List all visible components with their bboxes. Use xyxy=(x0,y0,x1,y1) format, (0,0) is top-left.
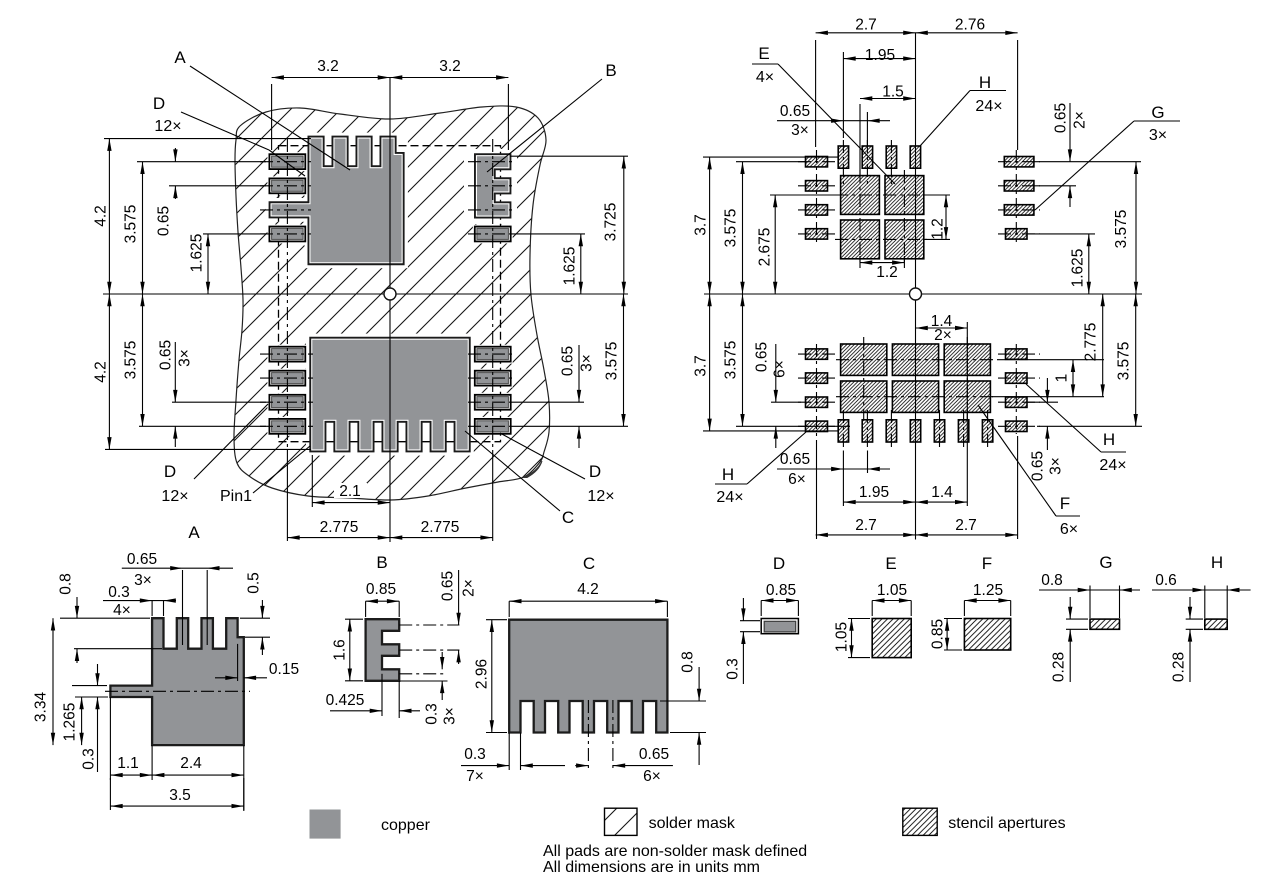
svg-text:6×: 6× xyxy=(643,768,661,785)
svg-text:stencil apertures: stencil apertures xyxy=(948,815,1065,832)
svg-text:3.575: 3.575 xyxy=(123,205,140,244)
svg-text:0.65: 0.65 xyxy=(158,340,175,370)
svg-text:24×: 24× xyxy=(716,489,743,506)
svg-text:Pin1: Pin1 xyxy=(220,488,252,505)
svg-text:E: E xyxy=(758,44,769,63)
svg-text:0.3: 0.3 xyxy=(424,703,441,725)
svg-text:H: H xyxy=(722,465,734,484)
svg-text:2×: 2× xyxy=(934,327,952,344)
svg-text:1.5: 1.5 xyxy=(882,84,904,101)
svg-text:12×: 12× xyxy=(587,488,614,505)
svg-text:D: D xyxy=(153,94,165,113)
svg-text:0.65: 0.65 xyxy=(560,346,577,376)
svg-text:2.775: 2.775 xyxy=(1083,323,1100,362)
svg-text:1.625: 1.625 xyxy=(189,234,206,273)
svg-text:1.2: 1.2 xyxy=(930,218,947,240)
svg-text:3.575: 3.575 xyxy=(723,209,740,248)
svg-text:0.5: 0.5 xyxy=(246,572,263,594)
svg-text:0.65: 0.65 xyxy=(156,206,173,236)
svg-text:12×: 12× xyxy=(161,488,188,505)
svg-text:3×: 3× xyxy=(1149,127,1167,144)
svg-text:0.28: 0.28 xyxy=(1051,652,1068,682)
svg-text:1: 1 xyxy=(1054,374,1071,383)
svg-text:3×: 3× xyxy=(177,349,194,367)
svg-text:0.8: 0.8 xyxy=(58,573,75,595)
svg-text:0.65: 0.65 xyxy=(639,746,669,763)
svg-text:F: F xyxy=(1060,494,1070,513)
svg-text:1.265: 1.265 xyxy=(62,703,79,742)
svg-text:copper: copper xyxy=(381,817,431,834)
svg-text:0.65: 0.65 xyxy=(127,551,157,568)
svg-text:1.2: 1.2 xyxy=(876,264,898,281)
svg-text:0.65: 0.65 xyxy=(754,342,771,372)
svg-text:D: D xyxy=(164,462,176,481)
svg-text:All dimensions are in units mm: All dimensions are in units mm xyxy=(543,859,760,876)
svg-text:H: H xyxy=(979,73,991,92)
svg-text:C: C xyxy=(562,508,574,527)
svg-text:7×: 7× xyxy=(466,768,484,785)
svg-text:3.575: 3.575 xyxy=(723,341,740,380)
svg-text:12×: 12× xyxy=(154,118,181,135)
svg-text:1.95: 1.95 xyxy=(865,47,895,64)
svg-text:0.85: 0.85 xyxy=(366,581,396,598)
svg-text:0.3: 0.3 xyxy=(725,658,742,680)
svg-text:3.575: 3.575 xyxy=(1116,342,1133,381)
svg-text:D: D xyxy=(773,554,785,573)
svg-text:0.65: 0.65 xyxy=(780,103,810,120)
svg-text:G: G xyxy=(1151,103,1164,122)
svg-text:6×: 6× xyxy=(788,471,806,488)
svg-text:3.2: 3.2 xyxy=(317,58,339,75)
svg-text:0.8: 0.8 xyxy=(680,651,697,673)
svg-text:2×: 2× xyxy=(1072,111,1089,129)
svg-text:1.25: 1.25 xyxy=(973,582,1003,599)
svg-text:2.7: 2.7 xyxy=(855,17,877,34)
svg-text:0.65: 0.65 xyxy=(780,451,810,468)
svg-text:3×: 3× xyxy=(791,122,809,139)
svg-text:6×: 6× xyxy=(772,360,789,378)
svg-text:2.96: 2.96 xyxy=(474,659,491,689)
svg-text:2.1: 2.1 xyxy=(339,483,361,500)
svg-text:24×: 24× xyxy=(1099,457,1126,474)
svg-text:E: E xyxy=(885,554,896,573)
svg-text:2.775: 2.775 xyxy=(320,519,359,536)
svg-text:0.6: 0.6 xyxy=(1155,572,1177,589)
svg-text:G: G xyxy=(1099,553,1112,572)
svg-text:2.76: 2.76 xyxy=(955,17,985,34)
svg-text:3.725: 3.725 xyxy=(603,203,620,242)
svg-text:3.2: 3.2 xyxy=(439,58,461,75)
svg-text:2.675: 2.675 xyxy=(757,228,774,267)
svg-text:1.05: 1.05 xyxy=(834,622,851,652)
svg-text:4.2: 4.2 xyxy=(93,205,110,227)
svg-text:1.95: 1.95 xyxy=(859,484,889,501)
svg-text:1.625: 1.625 xyxy=(562,247,579,286)
svg-text:B: B xyxy=(376,553,387,572)
svg-text:24×: 24× xyxy=(975,98,1002,115)
svg-text:A: A xyxy=(188,523,200,542)
svg-text:0.15: 0.15 xyxy=(269,661,299,678)
svg-text:4×: 4× xyxy=(756,69,774,86)
svg-text:H: H xyxy=(1211,553,1223,572)
svg-text:solder mask: solder mask xyxy=(649,815,736,832)
svg-text:3×: 3× xyxy=(579,354,596,372)
svg-text:2×: 2× xyxy=(461,579,478,597)
svg-text:4×: 4× xyxy=(113,602,131,619)
svg-text:1.625: 1.625 xyxy=(1070,249,1087,288)
svg-text:A: A xyxy=(174,48,186,67)
svg-text:1.1: 1.1 xyxy=(117,755,139,772)
svg-text:3.5: 3.5 xyxy=(169,787,191,804)
svg-text:6×: 6× xyxy=(1060,521,1078,538)
svg-text:H: H xyxy=(1103,430,1115,449)
svg-text:0.28: 0.28 xyxy=(1171,652,1188,682)
svg-text:2.775: 2.775 xyxy=(421,519,460,536)
svg-text:0.3: 0.3 xyxy=(464,746,486,763)
svg-text:2.4: 2.4 xyxy=(180,755,202,772)
svg-text:1.05: 1.05 xyxy=(877,582,907,599)
svg-text:0.65: 0.65 xyxy=(440,571,457,601)
svg-text:1.6: 1.6 xyxy=(332,639,349,661)
svg-text:3.575: 3.575 xyxy=(604,342,621,381)
svg-text:0.85: 0.85 xyxy=(766,582,796,599)
svg-text:3.34: 3.34 xyxy=(33,692,50,723)
svg-text:3×: 3× xyxy=(134,572,152,589)
svg-text:3.575: 3.575 xyxy=(123,341,140,380)
svg-text:0.65: 0.65 xyxy=(1030,451,1047,481)
svg-text:0.425: 0.425 xyxy=(326,692,365,709)
svg-text:2.7: 2.7 xyxy=(955,517,977,534)
svg-text:F: F xyxy=(982,554,992,573)
svg-text:0.3: 0.3 xyxy=(108,584,130,601)
svg-text:3.575: 3.575 xyxy=(1113,210,1130,249)
svg-text:0.65: 0.65 xyxy=(1053,103,1070,133)
svg-text:3.7: 3.7 xyxy=(693,214,710,236)
svg-text:B: B xyxy=(605,61,616,80)
svg-text:C: C xyxy=(583,554,595,573)
svg-text:3×: 3× xyxy=(442,707,459,725)
svg-text:3.7: 3.7 xyxy=(693,355,710,377)
svg-text:D: D xyxy=(589,462,601,481)
svg-text:All pads are non-solder mask d: All pads are non-solder mask defined xyxy=(543,843,807,860)
svg-text:0.3: 0.3 xyxy=(81,748,98,770)
svg-text:0.85: 0.85 xyxy=(930,619,947,649)
svg-text:2.7: 2.7 xyxy=(855,517,877,534)
svg-text:0.8: 0.8 xyxy=(1041,572,1063,589)
svg-text:3×: 3× xyxy=(1048,457,1065,475)
svg-text:4.2: 4.2 xyxy=(577,581,599,598)
svg-text:1.4: 1.4 xyxy=(931,484,953,501)
svg-text:4.2: 4.2 xyxy=(93,361,110,383)
